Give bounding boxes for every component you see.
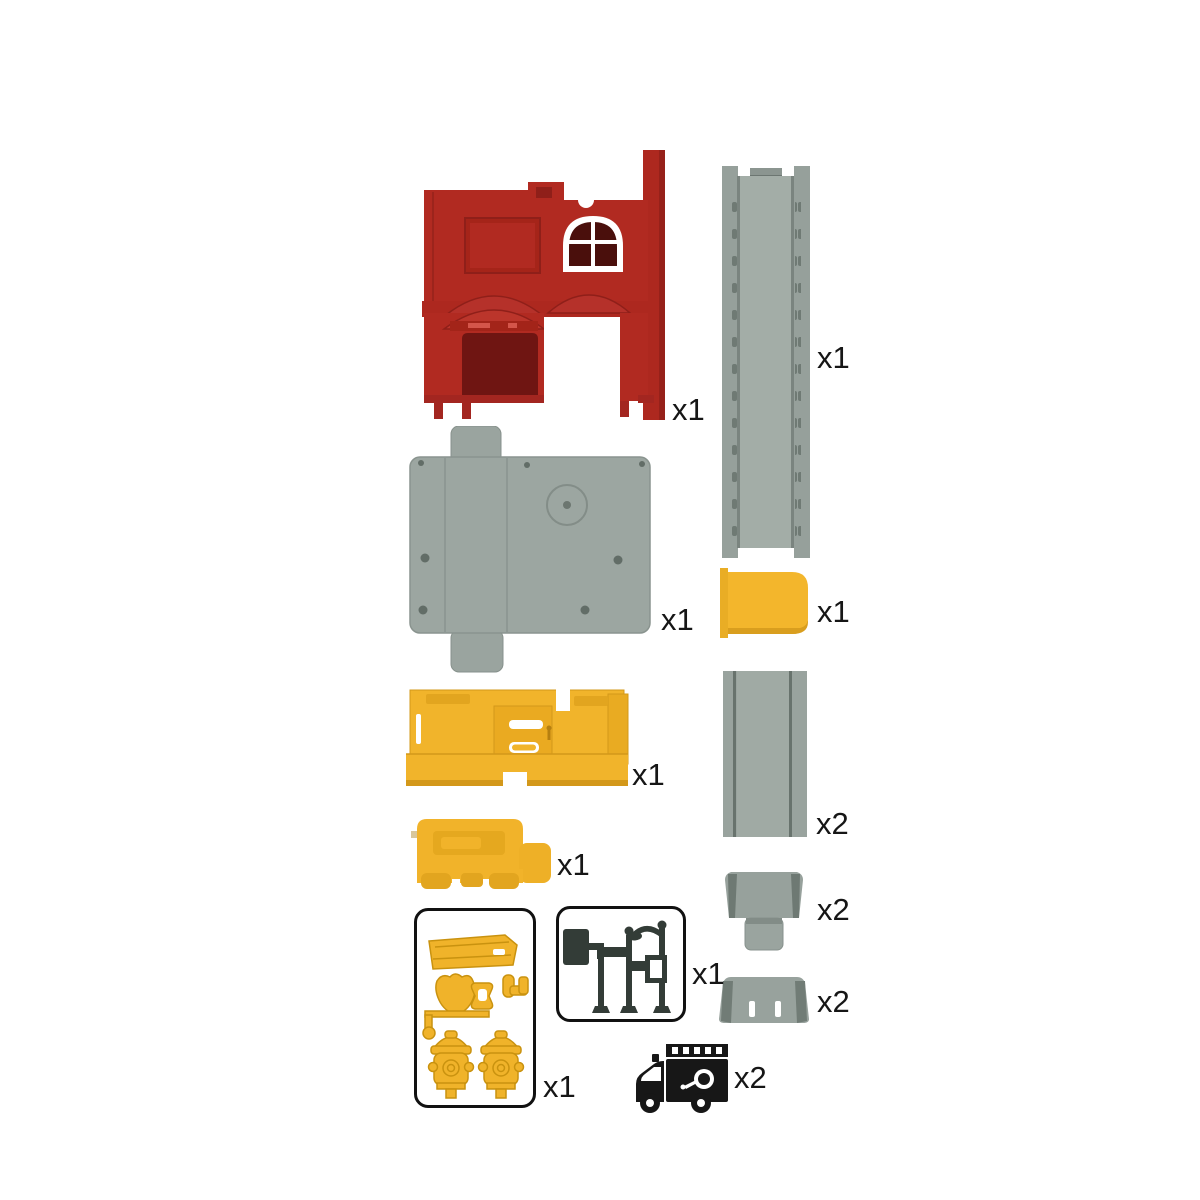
qty-ramp: x2 bbox=[817, 986, 850, 1017]
qty-short-track: x2 bbox=[816, 808, 849, 839]
short-straight-track-icon bbox=[723, 671, 807, 837]
badge-icon bbox=[436, 974, 475, 1015]
ramp-with-tab-icon bbox=[721, 870, 807, 952]
part-base-plate bbox=[407, 426, 659, 674]
street-sign-sprue-icon bbox=[559, 909, 683, 1019]
wall-panel-icon bbox=[406, 684, 634, 790]
part-red-facade bbox=[416, 143, 668, 421]
accessory-sprue-box bbox=[414, 908, 536, 1108]
part-vehicle-base bbox=[411, 817, 553, 899]
part-yellow-panel bbox=[720, 568, 812, 638]
part-long-track bbox=[720, 166, 812, 558]
qty-accessory-sprue: x1 bbox=[543, 1071, 576, 1102]
qty-red-facade: x1 bbox=[672, 394, 705, 425]
qty-fire-truck: x2 bbox=[734, 1062, 767, 1093]
street-sign-sprue-box bbox=[556, 906, 686, 1022]
part-ramp bbox=[719, 975, 809, 1027]
ramp-icon bbox=[719, 975, 809, 1027]
nozzle-bracket-icon bbox=[503, 975, 528, 997]
bone-connector-icon bbox=[471, 983, 492, 1009]
part-short-track bbox=[723, 671, 807, 837]
qty-vehicle-base: x1 bbox=[557, 849, 590, 880]
qty-long-track: x1 bbox=[817, 342, 850, 373]
qty-yellow-wall: x1 bbox=[632, 759, 665, 790]
fire-hydrant-icon bbox=[429, 1031, 474, 1098]
part-yellow-wall bbox=[406, 684, 634, 790]
billboard-sign-icon bbox=[563, 929, 610, 1013]
arched-window-icon bbox=[563, 216, 623, 272]
parts-list-sheet: x1 x1 bbox=[0, 0, 1200, 1200]
fire-station-facade-icon bbox=[416, 143, 668, 421]
hydrant-accessory-sprue-icon bbox=[417, 911, 533, 1105]
qty-ramp-with-tab: x2 bbox=[817, 894, 850, 925]
qty-base-plate: x1 bbox=[661, 604, 694, 635]
part-ramp-with-tab bbox=[721, 870, 807, 952]
door-panel-icon bbox=[720, 568, 812, 638]
part-fire-truck bbox=[634, 1044, 732, 1118]
fire-truck-icon bbox=[634, 1044, 732, 1118]
qty-yellow-panel: x1 bbox=[817, 596, 850, 627]
base-plate-icon bbox=[407, 426, 659, 674]
fire-hydrant-icon bbox=[479, 1031, 524, 1098]
awning-icon bbox=[429, 935, 517, 969]
qty-sign-sprue: x1 bbox=[692, 958, 725, 989]
vehicle-base-icon bbox=[411, 817, 553, 899]
long-straight-track-icon bbox=[720, 166, 812, 558]
